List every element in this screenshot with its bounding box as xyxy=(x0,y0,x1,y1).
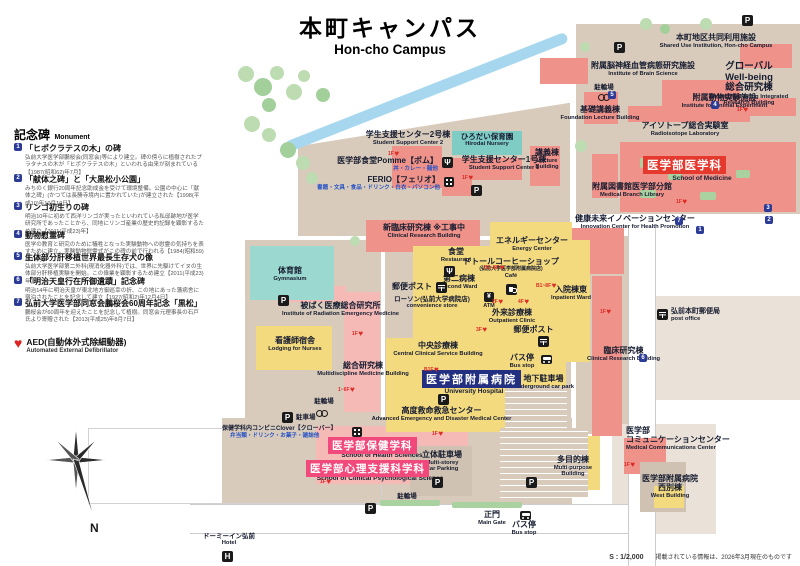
monument-marker: 6 xyxy=(639,354,647,362)
parking-icon: P xyxy=(278,295,289,306)
parking-icon: P xyxy=(526,477,537,488)
label-innovation-center: 健康未来イノベーションセンター Innovation Center for He… xyxy=(562,215,708,230)
label-en: Institute for Animal Experiment xyxy=(652,103,797,109)
label-en: Hirodai Nursery xyxy=(452,141,522,147)
label-en: Multi-purpose Building xyxy=(540,465,606,478)
label-clinical-research: 臨床研究棟 Clinical Research Building xyxy=(576,347,671,362)
roadside-green xyxy=(452,502,522,508)
monument-number-icon: 1 xyxy=(14,143,22,151)
label-central-clinical: 中央診療棟 Central Clinical Service Building xyxy=(384,342,492,357)
label-gymnasium: 体育館 Gymnasium xyxy=(246,267,334,282)
tree xyxy=(238,66,254,82)
label-jp: アイソトープ総合実験室 xyxy=(618,122,752,131)
label-en: Hotel xyxy=(190,540,268,546)
label-bicycle-parking-2: 駐輪場 xyxy=(302,398,346,405)
label-bus-stop-1: バス停 Bus stop xyxy=(502,354,542,369)
aed-marker: B1~8F♥ xyxy=(536,282,556,290)
postbox-icon xyxy=(436,282,447,293)
aed-marker: 1F♥ xyxy=(624,461,635,469)
monument-title: リンゴ初生りの碑 xyxy=(25,202,89,213)
label-radioisotope: アイソトープ総合実験室 Radioisotope Laboratory xyxy=(618,122,752,137)
store-icon xyxy=(444,177,454,187)
aed-heart-icon: ♥ xyxy=(743,105,748,114)
label-jp: 郵便ポスト xyxy=(506,326,561,335)
label-jp: 中央診療棟 xyxy=(384,342,492,351)
label-goods: 書籍・文具・食品・ドリンク・白衣・パソコン他 xyxy=(290,185,440,191)
aed-marker: 1F♥ xyxy=(737,106,748,114)
aed-marker: 2F♥ xyxy=(492,298,503,306)
label-jp: 郵便ポスト xyxy=(388,283,436,292)
compass-north-label: N xyxy=(90,521,99,535)
bus-icon xyxy=(541,355,552,364)
street xyxy=(628,228,656,566)
title-jp: 本町キャンパス xyxy=(270,16,510,42)
label-bus-stop-2: バス停 Bus stop xyxy=(500,521,548,536)
scale-text: S : 1/2,000 xyxy=(609,554,643,561)
tree xyxy=(254,78,272,96)
label-animal-experiment: 附属動物実験施設 Institute for Animal Experiment xyxy=(652,94,797,109)
label-jp: 臨床研究棟 xyxy=(576,347,671,356)
label-en: School of Medicine xyxy=(648,175,756,182)
monument-number-icon: 2 xyxy=(14,174,22,182)
label-pomme-cafeteria: 医学部食堂Pomme【ポム】 丼・カレー・麺他 xyxy=(300,157,438,172)
street xyxy=(190,504,632,534)
label-jp: グローバル Well-being 総合研究棟 xyxy=(702,62,796,94)
monument-title: 「明治天皇行在所御遺蹟」記念碑 xyxy=(25,276,145,287)
monument-title: 弘前大学医学部同窓会鵬桜会60周年記念「黒松」 xyxy=(25,298,202,309)
label-outpatient-clinic: 外来診療棟 Outpatient Clinic xyxy=(470,309,554,324)
label-bicycle-parking-north: 駐輪場 xyxy=(584,84,624,91)
label-en: Inpatient Ward xyxy=(542,295,600,301)
label-jp: 駐輪場 xyxy=(384,493,430,500)
banner-psychology: 医学部心理支援科学科 xyxy=(306,460,429,477)
cafe-icon xyxy=(506,284,517,295)
label-jp: 附属図書館医学部分館 xyxy=(576,183,688,192)
aed-marker: 1F♥ xyxy=(462,174,473,182)
label-jp: 附属脳神経血管病態研究施設 xyxy=(576,62,710,71)
tree xyxy=(286,84,302,100)
label-en: West Building xyxy=(628,493,712,499)
page-title: 本町キャンパス Hon-cho Campus xyxy=(270,16,510,57)
monument-number-icon: 6 xyxy=(14,276,22,284)
label-bicycle-parking-3: 駐輪場 xyxy=(384,493,430,500)
label-en: Institute of Radiation Emergency Medicin… xyxy=(258,311,423,317)
monument-item: 7弘前大学医学部同窓会鵬桜会60周年記念「黒松」 鵬桜会が60周年を迎えたことを… xyxy=(14,298,204,325)
tree xyxy=(298,70,310,82)
label-en: Gymnasium xyxy=(246,276,334,282)
compass-rose: N xyxy=(38,412,128,542)
tree xyxy=(262,128,276,142)
aed-label-jp: AED(自動体外式除細動器) xyxy=(26,336,126,348)
map-footer: S : 1/2,000掲載されている情報は、2026年3月現在のものです xyxy=(470,546,792,564)
label-student-support-2: 学生支援センター2号棟 Student Support Center 2 xyxy=(350,131,466,146)
label-jp: 医学部附属病院 西別棟 xyxy=(628,475,712,493)
label-hotel: ドーミーイン弘前 Hotel xyxy=(190,533,268,547)
monument-title: 「献体之碑」と「大黒松小公園」 xyxy=(25,174,145,185)
monument-number-icon: 7 xyxy=(14,298,22,306)
aed-heart-icon: ♥ xyxy=(682,197,687,206)
label-advanced-emergency: 高度救命救急センター Advanced Emergency and Disast… xyxy=(364,407,519,422)
monument-item: 1「ヒポクラテスの木」の碑 弘前大学医学部鵬桜会(同窓会)等により建立。碑の傍ら… xyxy=(14,143,204,177)
bicycle-icon xyxy=(316,409,328,417)
parking-icon: P xyxy=(432,477,443,488)
label-en: Student Support Center 2 xyxy=(350,140,466,146)
aed-heart-icon: ♥ xyxy=(630,460,635,469)
label-jp: 体育館 xyxy=(246,267,334,276)
tree xyxy=(575,140,587,152)
aed-marker: 4F♥ xyxy=(518,298,529,306)
courtyard-green xyxy=(700,192,716,200)
monument-marker: 5 xyxy=(608,91,616,99)
aed-heart-icon: ♥ xyxy=(468,173,473,182)
label-nurses-lodging: 看護師宿舎 Lodging for Nurses xyxy=(256,337,334,352)
monument-marker: 3 xyxy=(764,204,772,212)
roadside-green xyxy=(380,500,440,506)
label-jp: バス停 xyxy=(502,354,542,363)
label-jp: 学生支援センター1号棟 xyxy=(448,156,560,165)
legend-heading: 記念碑 Monument xyxy=(14,126,90,144)
monument-marker: 4 xyxy=(711,101,719,109)
legend-heading-en: Monument xyxy=(54,134,89,141)
aed-marker: 1F♥ xyxy=(388,150,399,158)
label-jp: 総合研究棟 xyxy=(296,362,430,371)
postbox-icon xyxy=(538,336,549,347)
label-en: Institute of Brain Science xyxy=(576,71,710,77)
aed-heart-icon: ♥ xyxy=(482,325,487,334)
label-energy-center: エネルギーセンター Energy Center xyxy=(488,237,576,252)
tree xyxy=(700,18,712,30)
label-en: Bus stop xyxy=(500,530,548,536)
label-jp: 駐輪場 xyxy=(584,84,624,91)
footnote: 掲載されている情報は、2026年3月現在のものです xyxy=(655,555,792,561)
campus-map: 本町キャンパス Hon-cho Campus 記念碑 Monument 1「ヒポ… xyxy=(0,0,800,566)
restaurant-icon: Ψ xyxy=(442,157,453,168)
label-jp: 医学部 コミュニケーションセンター xyxy=(626,427,752,445)
aed-heart-icon: ♥ xyxy=(326,477,331,486)
aed-legend: ♥ AED(自動体外式除細動器) Automated External Defi… xyxy=(14,336,204,354)
monument-marker: 1 xyxy=(696,226,704,234)
label-school-of-medicine-en: School of Medicine xyxy=(648,175,756,182)
label-multidiscipline: 総合研究棟 Multidiscipline Medicine Building xyxy=(296,362,430,377)
label-jp: 高度救命救急センター xyxy=(364,407,519,416)
tree xyxy=(640,18,652,30)
aed-heart-icon: ♥ xyxy=(438,429,443,438)
aed-marker: B1F♥ xyxy=(424,366,439,374)
label-ferio-store: FERIO【フェリオ】 書籍・文具・食品・ドリンク・白衣・パソコン他 xyxy=(290,176,440,191)
aed-marker: 3F♥ xyxy=(476,326,487,334)
label-postbox-2: 郵便ポスト xyxy=(506,326,561,335)
tree xyxy=(350,236,360,246)
restaurant-icon: Ψ xyxy=(444,266,455,277)
aed-marker: 1F♥ xyxy=(676,198,687,206)
aed-heart-icon: ♥ xyxy=(552,281,557,290)
label-jp: 附属動物実験施設 xyxy=(652,94,797,103)
label-foundation-lecture: 基礎講義棟 Foundation Lecture Building xyxy=(544,106,656,121)
label-shared-use: 本町地区共同利用施設 Shared Use Institution, Hon-c… xyxy=(636,34,796,49)
tree xyxy=(316,88,330,102)
label-en: Clinical Research Building xyxy=(368,233,480,239)
label-jp: 食堂 xyxy=(428,248,484,257)
store-icon xyxy=(352,427,362,437)
parking-icon: P xyxy=(365,503,376,514)
label-west-building: 医学部附属病院 西別棟 West Building xyxy=(628,475,712,499)
monument-number-icon: 5 xyxy=(14,252,22,260)
parking-icon: P xyxy=(614,42,625,53)
label-postbox-1: 郵便ポスト xyxy=(388,283,436,292)
label-jp: 基礎講義棟 xyxy=(544,106,656,115)
label-jp: バス停 xyxy=(500,521,548,530)
label-jp: 新臨床研究棟 ※工事中 xyxy=(368,224,480,233)
label-en: Lodging for Nurses xyxy=(256,346,334,352)
label-jp: 保健学科内コンビニClover【クローバー】 xyxy=(222,426,354,433)
tree xyxy=(280,142,296,158)
parking-icon: P xyxy=(471,185,482,196)
label-en: Energy Center xyxy=(488,246,576,252)
monument-marker: 7 xyxy=(675,217,683,225)
label-jp: 学生支援センター2号棟 xyxy=(350,131,466,140)
label-student-support-1: 学生支援センター1号棟 Student Support Center 1 xyxy=(448,156,560,171)
aed-heart-icon: ♥ xyxy=(500,263,505,272)
label-jp: 多目的棟 xyxy=(540,456,606,465)
aed-marker: 1~6F♥ xyxy=(338,386,355,394)
aed-heart-icon: ♥ xyxy=(14,336,22,350)
aed-marker: 1F♥ xyxy=(320,478,331,486)
aed-heart-icon: ♥ xyxy=(350,385,355,394)
title-en: Hon-cho Campus xyxy=(270,42,510,57)
label-jp: 正門 xyxy=(466,511,518,520)
label-jp: エネルギーセンター xyxy=(488,237,576,246)
label-en: Radioisotope Laboratory xyxy=(618,131,752,137)
label-jp: ひろだい保育園 xyxy=(452,133,522,141)
label-jp: FERIO【フェリオ】 xyxy=(290,176,440,185)
aed-heart-icon: ♥ xyxy=(498,297,503,306)
label-medical-library: 附属図書館医学部分館 Medical Branch Library xyxy=(576,183,688,198)
tree xyxy=(262,98,276,112)
label-jp: 外来診療棟 xyxy=(470,309,554,318)
monument-title: 動物慰霊碑 xyxy=(25,230,65,241)
bus-icon xyxy=(520,511,531,520)
monument-desc: 鵬桜会が60周年を迎えたことを記念して植樹。同窓会元理事長の石戸氏より寄贈された… xyxy=(25,310,204,325)
label-jp: 本町地区共同利用施設 xyxy=(636,34,796,43)
aed-heart-icon: ♥ xyxy=(606,307,611,316)
aed-label-en: Automated External Defibrillator xyxy=(26,348,126,354)
label-en: Advanced Emergency and Disaster Medical … xyxy=(364,416,519,422)
label-en: Bus stop xyxy=(502,363,542,369)
tree xyxy=(580,42,590,52)
banner-health-sciences: 医学部保健学科 xyxy=(328,437,417,454)
parking-icon: P xyxy=(438,394,449,405)
label-communications-center: 医学部 コミュニケーションセンター Medical Communications… xyxy=(626,427,752,451)
label-en: Student Support Center 1 xyxy=(448,165,560,171)
monument-number-icon: 4 xyxy=(14,230,22,238)
label-en: Multidiscipline Medicine Building xyxy=(296,371,430,377)
label-en: Clinical Research Building xyxy=(576,356,671,362)
aed-heart-icon: ♥ xyxy=(434,365,439,374)
parking-icon: P xyxy=(282,412,293,423)
label-new-clinical-research: 新臨床研究棟 ※工事中 Clinical Research Building xyxy=(368,224,480,239)
label-jp: 弘前本町郵便局 xyxy=(671,308,756,316)
monument-title: 生体部分肝移植世界最長生存犬の像 xyxy=(25,252,153,263)
legend-heading-jp: 記念碑 xyxy=(14,128,50,142)
aed-heart-icon: ♥ xyxy=(358,329,363,338)
label-en: Outpatient Clinic xyxy=(470,318,554,324)
aed-marker: B1~8F♥ xyxy=(484,264,504,272)
label-en: Shared Use Institution, Hon-cho Campus xyxy=(636,43,796,49)
label-jp: ドーミーイン弘前 xyxy=(190,533,268,540)
tree xyxy=(270,66,284,80)
label-jp: 看護師宿舎 xyxy=(256,337,334,346)
label-en: Medical Branch Library xyxy=(576,192,688,198)
label-menu: 丼・カレー・麺他 xyxy=(300,166,438,172)
post-office-icon xyxy=(657,309,668,320)
banner-school-of-medicine: 医学部医学科 xyxy=(643,156,726,174)
tree xyxy=(660,24,670,34)
monument-marker: 2 xyxy=(765,216,773,224)
aed-heart-icon: ♥ xyxy=(394,149,399,158)
label-en: Foundation Lecture Building xyxy=(544,115,656,121)
tree xyxy=(244,116,260,132)
label-brain-institute: 附属脳神経血管病態研究施設 Institute of Brain Science xyxy=(576,62,710,77)
aed-marker: 1F♥ xyxy=(600,308,611,316)
hotel-icon: H xyxy=(222,551,233,562)
label-jp: 医学部食堂Pomme【ポム】 xyxy=(300,157,438,166)
label-multipurpose: 多目的棟 Multi-purpose Building xyxy=(540,456,606,478)
label-jp: 健康未来イノベーションセンター xyxy=(562,215,708,224)
aed-marker: 1F♥ xyxy=(352,330,363,338)
label-post-office: 弘前本町郵便局 post office xyxy=(671,308,756,322)
label-en: Central Clinical Service Building xyxy=(384,351,492,357)
label-jp: 駐輪場 xyxy=(302,398,346,405)
monument-title: 「ヒポクラテスの木」の碑 xyxy=(25,143,121,154)
parking-icon: P xyxy=(742,15,753,26)
aed-heart-icon: ♥ xyxy=(524,297,529,306)
aed-marker: 1F♥ xyxy=(432,430,443,438)
label-en: post office xyxy=(671,316,756,322)
label-en: Medical Communications Center xyxy=(626,445,752,451)
label-en: Innovation Center for Health Promotion xyxy=(562,224,708,230)
label-nursery: ひろだい保育園 Hirodai Nursery xyxy=(452,133,522,148)
monument-number-icon: 3 xyxy=(14,202,22,210)
